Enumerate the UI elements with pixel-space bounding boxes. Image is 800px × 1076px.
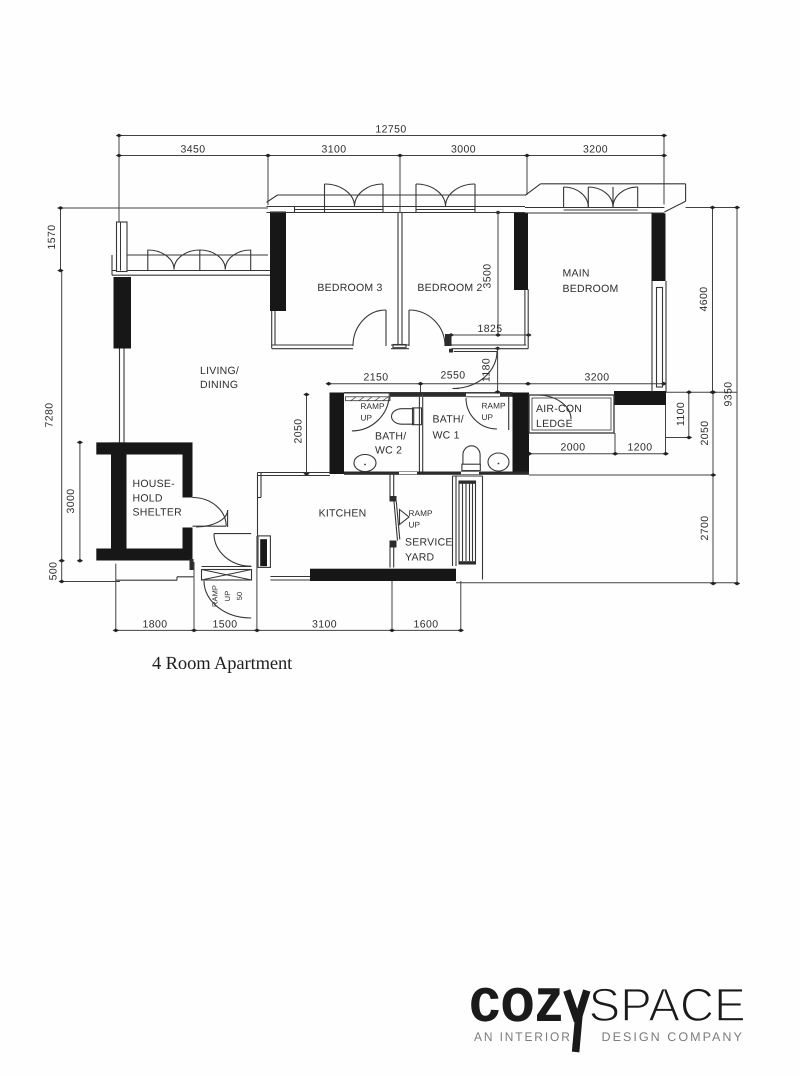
svg-text:RAMP: RAMP [361,402,385,411]
svg-text:50: 50 [235,592,244,601]
svg-text:3500: 3500 [482,264,494,289]
svg-text:SHELTER: SHELTER [133,507,183,519]
svg-text:4600: 4600 [698,287,710,312]
svg-text:1180: 1180 [481,358,493,382]
svg-text:RAMP: RAMP [409,509,433,518]
svg-text:2550: 2550 [441,370,466,382]
svg-text:LIVING/: LIVING/ [200,365,239,377]
svg-text:500: 500 [48,562,60,581]
svg-text:2150: 2150 [364,372,389,384]
svg-text:WC 2: WC 2 [375,445,402,457]
svg-text:coz: coz [469,966,563,1035]
svg-text:1500: 1500 [213,619,238,631]
svg-text:3200: 3200 [583,144,608,156]
svg-text:7280: 7280 [44,403,56,428]
svg-text:3000: 3000 [451,144,476,156]
svg-text:BATH/: BATH/ [375,431,406,443]
svg-text:2050: 2050 [699,421,711,446]
svg-text:1800: 1800 [143,619,168,631]
svg-text:SPACE: SPACE [589,978,746,1031]
svg-text:MAIN: MAIN [563,268,590,280]
svg-text:3100: 3100 [322,144,347,156]
svg-text:12750: 12750 [375,124,406,136]
svg-text:3000: 3000 [65,489,77,514]
svg-text:3200: 3200 [585,372,610,384]
svg-text:3450: 3450 [181,144,206,156]
svg-text:RAMP: RAMP [211,585,220,607]
svg-text:LEDGE: LEDGE [536,418,573,430]
svg-text:4 Room Apartment: 4 Room Apartment [152,654,293,674]
svg-text:UP: UP [482,413,494,422]
svg-text:2000: 2000 [561,442,586,454]
svg-text:3100: 3100 [312,619,337,631]
svg-text:BEDROOM 3: BEDROOM 3 [317,282,382,294]
svg-text:KITCHEN: KITCHEN [319,508,367,520]
svg-text:SERVICE: SERVICE [405,537,453,549]
svg-text:RAMP: RAMP [482,402,506,411]
svg-text:1825: 1825 [478,323,503,335]
svg-text:YARD: YARD [405,552,435,564]
svg-text:1600: 1600 [414,619,439,631]
svg-text:WC 1: WC 1 [433,430,460,442]
svg-text:2050: 2050 [293,419,305,444]
svg-text:1100: 1100 [675,402,687,426]
svg-text:DESIGN COMPANY: DESIGN COMPANY [602,1030,744,1044]
svg-text:DINING: DINING [200,379,238,391]
svg-text:HOLD: HOLD [133,493,163,505]
svg-text:HOUSE-: HOUSE- [133,478,176,490]
svg-text:UP: UP [361,414,373,423]
svg-text:2700: 2700 [699,516,711,541]
svg-text:1570: 1570 [46,225,58,250]
svg-text:AIR-CON: AIR-CON [536,403,582,415]
svg-text:BEDROOM 2: BEDROOM 2 [417,282,482,294]
svg-text:9350: 9350 [723,382,735,407]
svg-text:AN INTERIOR: AN INTERIOR [474,1030,572,1044]
svg-text:UP: UP [223,591,232,602]
svg-text:1200: 1200 [628,442,653,454]
svg-text:BATH/: BATH/ [433,414,464,426]
svg-text:BEDROOM: BEDROOM [563,283,619,295]
svg-text:UP: UP [409,521,421,530]
